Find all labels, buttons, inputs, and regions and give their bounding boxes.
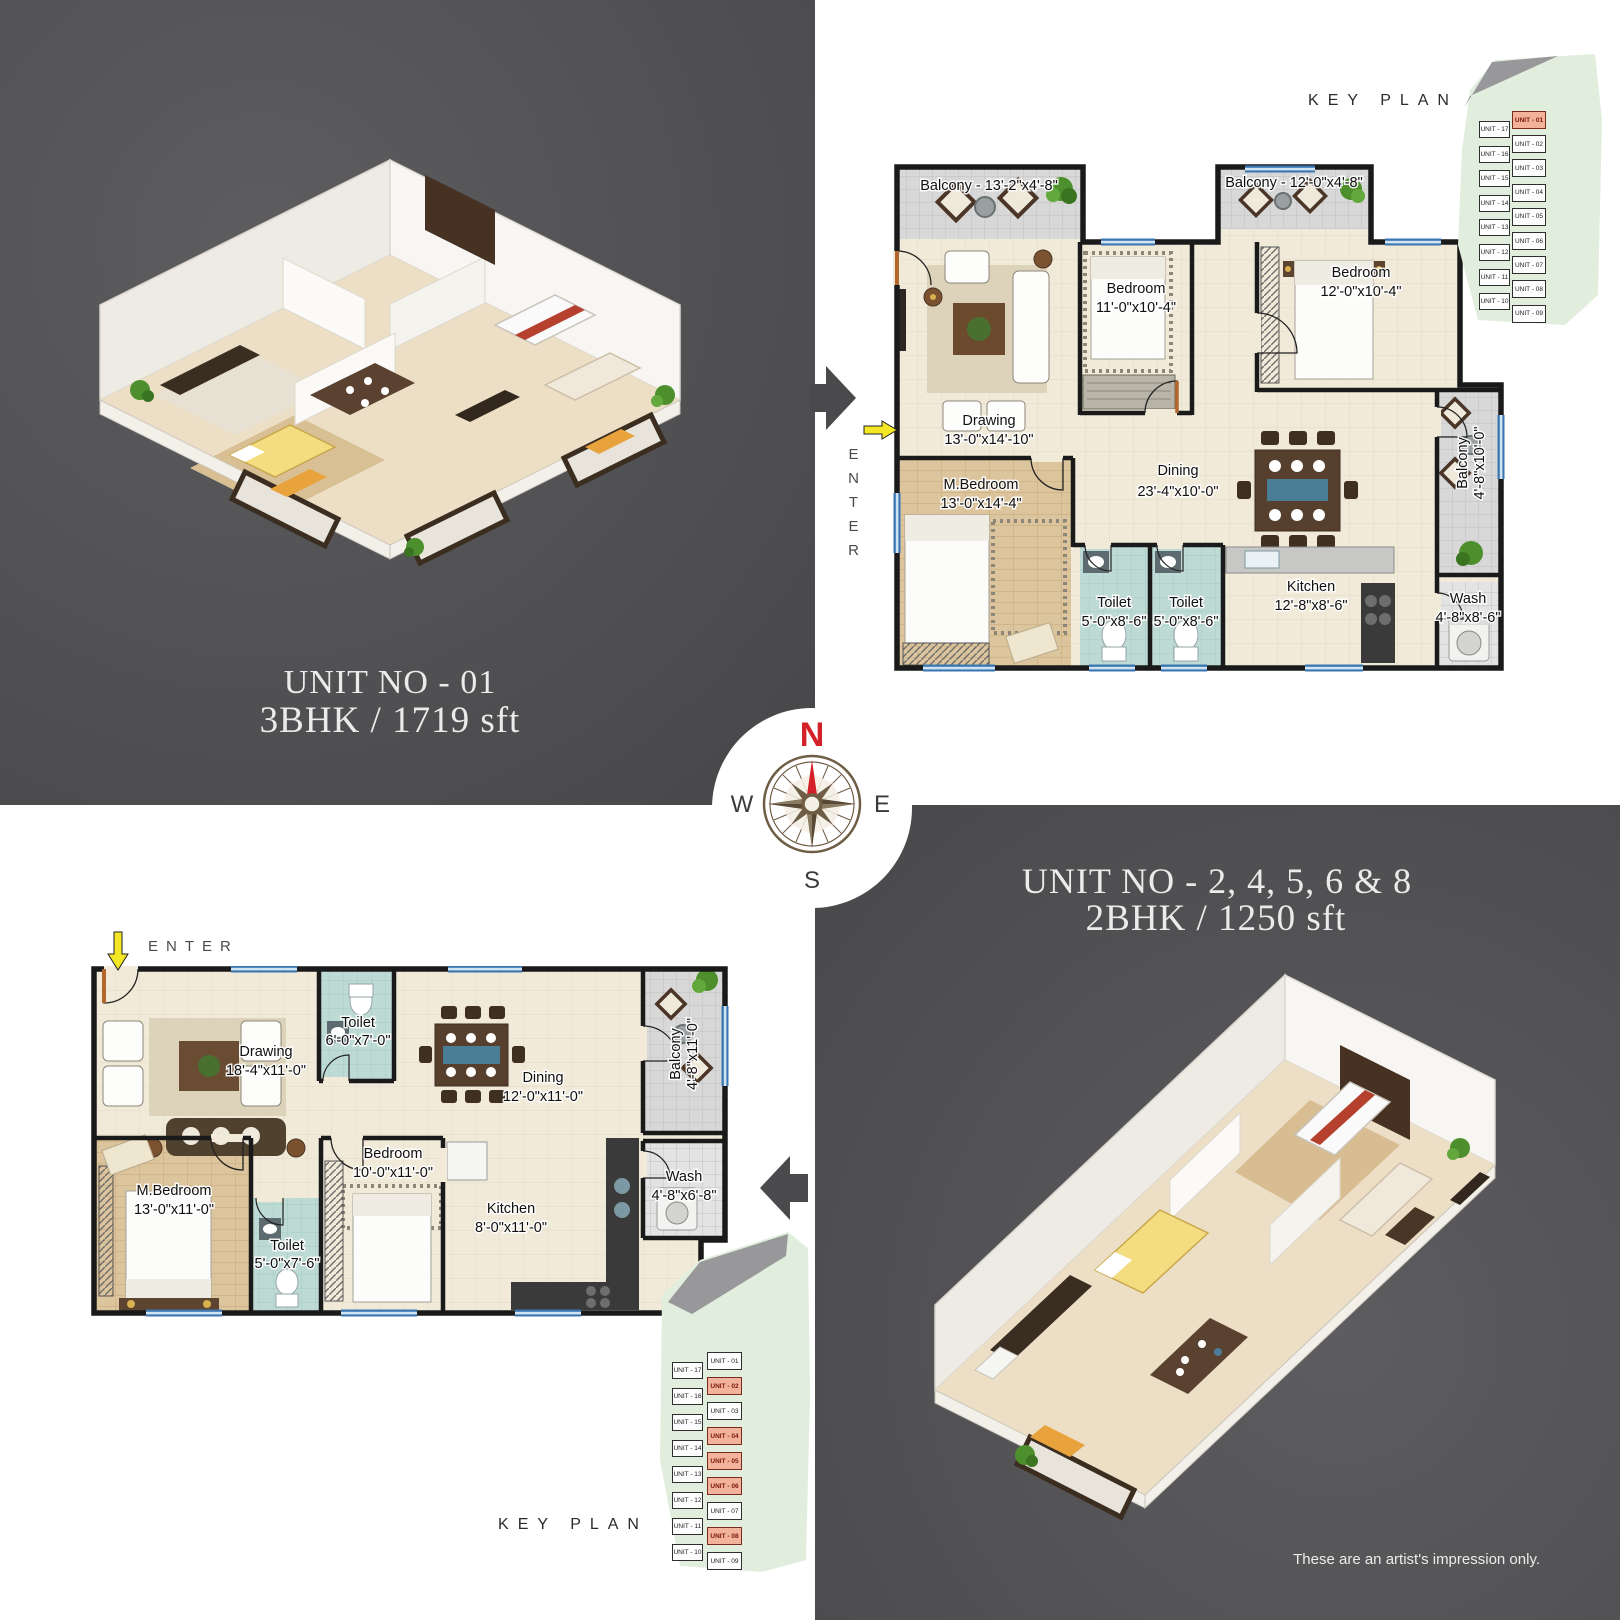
- room-label: Dining: [1157, 463, 1198, 479]
- compass-star: [768, 760, 856, 848]
- key-plan-unit-box: UNIT - 13: [672, 1466, 703, 1483]
- room-label: Balcony: [1455, 436, 1471, 488]
- key-plan-unit-box: UNIT - 01: [1512, 111, 1546, 129]
- key-plan-unit-box: UNIT - 10: [1479, 293, 1510, 310]
- room-label: Wash: [1450, 591, 1487, 607]
- unit1-title: UNIT NO - 01: [240, 663, 540, 703]
- key-plan-top-units: UNIT - 17UNIT - 16UNIT - 15UNIT - 14UNIT…: [1440, 45, 1620, 345]
- room-label: Drawing: [962, 413, 1015, 429]
- key-plan-unit-box: UNIT - 08: [1512, 280, 1546, 298]
- compass-north-label: N: [800, 716, 825, 754]
- room-label: Drawing: [239, 1044, 292, 1060]
- room-dims: 4'-8"x6'-8": [652, 1188, 717, 1204]
- room-dims: 12'-8"x8'-6": [1274, 598, 1347, 614]
- key-plan-bottom-units: UNIT - 17UNIT - 16UNIT - 15UNIT - 14UNIT…: [650, 1225, 820, 1580]
- unit2-enter-label: ENTER: [148, 938, 239, 955]
- compass-south-label: S: [804, 867, 820, 894]
- room-label: Toilet: [1169, 595, 1203, 611]
- unit2-3d-render: [840, 920, 1530, 1570]
- room-label: Bedroom: [1107, 281, 1166, 297]
- key-plan-unit-box: UNIT - 09: [1512, 305, 1546, 323]
- room-dims: 23'-4"x10'-0": [1137, 484, 1218, 500]
- room-dims: 13'-0"x11'-0": [134, 1202, 214, 1218]
- room-dims: 11'-0"x10'-4": [1096, 300, 1176, 316]
- key-plan-unit-box: UNIT - 07: [1512, 256, 1546, 274]
- room-dims: 5'-0"x8'-6": [1154, 614, 1219, 630]
- room-label: M.Bedroom: [944, 477, 1019, 493]
- key-plan-unit-box: UNIT - 05: [707, 1452, 742, 1470]
- key-plan-unit-box: UNIT - 13: [1479, 219, 1510, 236]
- room-dims: 4'-8"x11'-0": [685, 1018, 701, 1090]
- unit1-enter-arrow-icon: [862, 419, 900, 441]
- key-plan-unit-box: UNIT - 10: [672, 1544, 703, 1561]
- room-dims: 4'-8"x10'-0": [1472, 426, 1488, 499]
- room-label: Balcony - 13'-2"x4'-8": [920, 178, 1058, 194]
- unit2-floor-plan: Drawing 18'-4"x11'-0" Toilet 6'-0"x7'-0"…: [91, 966, 731, 1318]
- room-dims: 12'-0"x11'-0": [503, 1089, 583, 1105]
- key-plan-unit-box: UNIT - 05: [1512, 208, 1546, 226]
- arrow-right-icon: [798, 358, 858, 438]
- key-plan-unit-box: UNIT - 12: [1479, 244, 1510, 261]
- key-plan-unit-box: UNIT - 11: [1479, 269, 1510, 286]
- key-plan-unit-box: UNIT - 16: [672, 1388, 703, 1405]
- key-plan-unit-box: UNIT - 11: [672, 1518, 703, 1535]
- key-plan-unit-box: UNIT - 07: [707, 1502, 742, 1520]
- brochure-canvas: Balcony - 13'-2"x4'-8" Balcony - 12'-0"x…: [0, 0, 1620, 1620]
- unit2-subtitle: 2BHK / 1250 sft: [1016, 898, 1416, 940]
- unit2-enter-arrow-icon: [106, 930, 130, 972]
- room-dims: 5'-0"x8'-6": [1082, 614, 1147, 630]
- key-plan-unit-box: UNIT - 12: [672, 1492, 703, 1509]
- key-plan-unit-box: UNIT - 04: [1512, 184, 1546, 202]
- room-dims: 10'-0"x11'-0": [353, 1165, 433, 1181]
- unit2-3d-walls: [935, 975, 1495, 1508]
- compass-east-label: E: [874, 791, 890, 818]
- key-plan-bottom-title: KEY PLAN: [473, 1516, 673, 1534]
- key-plan-unit-box: UNIT - 17: [672, 1362, 703, 1379]
- room-label: Toilet: [341, 1015, 375, 1031]
- key-plan-unit-box: UNIT - 14: [1479, 195, 1510, 212]
- compass-rose: N S W E: [712, 698, 912, 912]
- room-dims: 4'-8"x8'-6": [1436, 610, 1501, 626]
- room-label: Balcony: [668, 1027, 684, 1079]
- room-dims: 8'-0"x11'-0": [475, 1220, 547, 1236]
- key-plan-unit-box: UNIT - 15: [672, 1414, 703, 1431]
- unit2-title: UNIT NO - 2, 4, 5, 6 & 8: [1007, 860, 1427, 902]
- room-dims: 13'-0"x14'-10": [944, 432, 1033, 448]
- key-plan-unit-box: UNIT - 15: [1479, 170, 1510, 187]
- room-label: Toilet: [1097, 595, 1131, 611]
- room-label: M.Bedroom: [137, 1183, 212, 1199]
- room-dims: 6'-0"x7'-0": [326, 1033, 391, 1049]
- compass-west-label: W: [731, 791, 754, 818]
- room-label: Balcony - 12'-0"x4'-8": [1225, 175, 1363, 191]
- room-label: Kitchen: [1287, 579, 1335, 595]
- unit1-3d-render: [65, 95, 715, 675]
- key-plan-unit-box: UNIT - 08: [707, 1527, 742, 1545]
- key-plan-unit-box: UNIT - 16: [1479, 146, 1510, 163]
- unit1-floor-plan: Balcony - 13'-2"x4'-8" Balcony - 12'-0"x…: [893, 163, 1505, 673]
- unit1-enter-label: ENTER: [845, 446, 862, 566]
- room-label: Bedroom: [364, 1146, 423, 1162]
- arrow-left-icon: [756, 1148, 818, 1228]
- room-dims: 12'-0"x10'-4": [1320, 284, 1401, 300]
- room-label: Wash: [666, 1169, 703, 1185]
- key-plan-unit-box: UNIT - 04: [707, 1427, 742, 1445]
- room-dims: 18'-4"x11'-0": [226, 1063, 306, 1079]
- unit1-3d-walls: [100, 160, 680, 559]
- key-plan-unit-box: UNIT - 03: [1512, 159, 1546, 177]
- key-plan-unit-box: UNIT - 14: [672, 1440, 703, 1457]
- room-label: Bedroom: [1332, 265, 1391, 281]
- key-plan-unit-box: UNIT - 01: [707, 1352, 742, 1370]
- key-plan-unit-box: UNIT - 09: [707, 1552, 742, 1570]
- disclaimer-text: These are an artist's impression only.: [1160, 1551, 1540, 1568]
- room-label: Kitchen: [487, 1201, 535, 1217]
- room-dims: 13'-0"x14'-4": [940, 496, 1021, 512]
- key-plan-unit-box: UNIT - 02: [1512, 135, 1546, 153]
- room-dims: 5'-0"x7'-6": [255, 1256, 320, 1272]
- room-label: Dining: [522, 1070, 563, 1086]
- key-plan-unit-box: UNIT - 03: [707, 1402, 742, 1420]
- room-label: Toilet: [270, 1238, 304, 1254]
- key-plan-unit-box: UNIT - 06: [1512, 232, 1546, 250]
- key-plan-unit-box: UNIT - 17: [1479, 121, 1510, 138]
- unit1-subtitle: 3BHK / 1719 sft: [215, 700, 565, 742]
- key-plan-unit-box: UNIT - 02: [707, 1377, 742, 1395]
- key-plan-unit-box: UNIT - 06: [707, 1477, 742, 1495]
